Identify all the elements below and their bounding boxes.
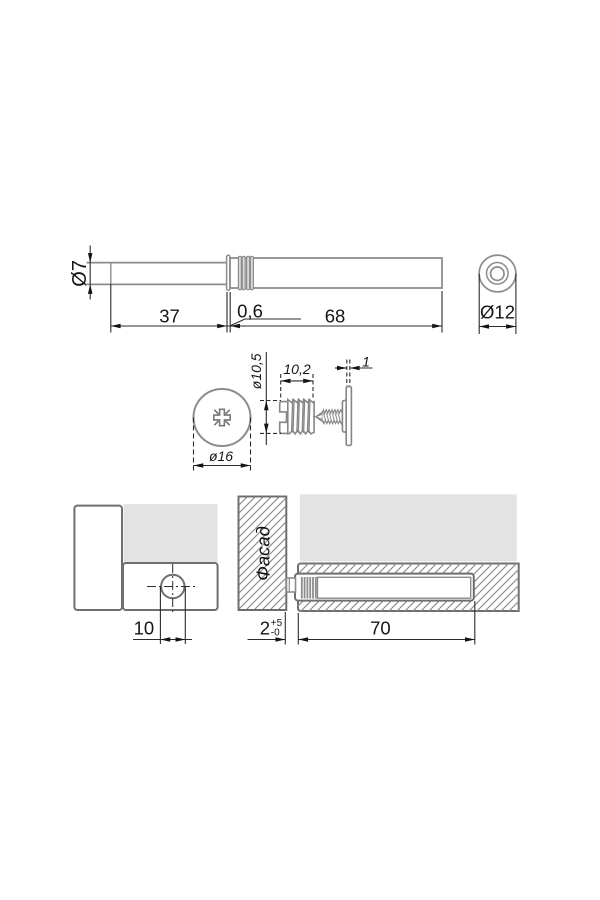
svg-text:Ø12: Ø12: [480, 302, 515, 323]
svg-text:37: 37: [159, 306, 180, 327]
svg-text:-0: -0: [271, 627, 280, 638]
svg-text:ø10,5: ø10,5: [248, 353, 264, 389]
svg-text:10: 10: [134, 617, 155, 638]
svg-text:ø16: ø16: [209, 448, 233, 464]
svg-text:0,6: 0,6: [237, 301, 263, 322]
svg-text:68: 68: [325, 305, 346, 326]
svg-text:Фасад: Фасад: [252, 526, 273, 581]
svg-text:2: 2: [260, 617, 270, 638]
svg-text:1: 1: [362, 353, 370, 369]
svg-text:10,2: 10,2: [283, 361, 310, 377]
svg-text:Ø7: Ø7: [69, 260, 91, 287]
svg-text:70: 70: [370, 618, 391, 639]
